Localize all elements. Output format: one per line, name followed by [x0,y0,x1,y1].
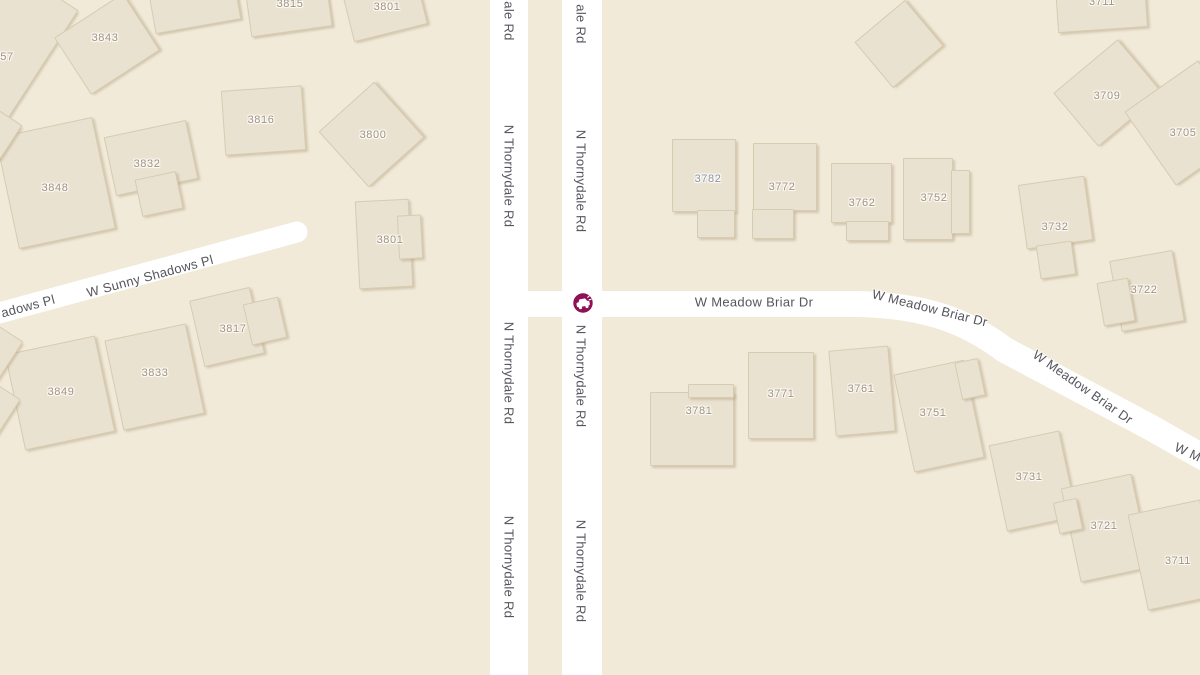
road-label: W Meadow Briar Dr [695,295,814,310]
house-number-label: 57 [0,51,13,63]
house-number-label: 3709 [1094,90,1121,102]
crash-incident-marker[interactable] [571,291,595,315]
road-label: N Thornydale Rd [502,125,517,228]
house-number-label: 3781 [686,405,713,417]
house-number-label: 3843 [92,32,119,44]
road-label: N Thornydale Rd [574,325,589,428]
house-number-label: 3771 [768,388,795,400]
road-label: N Thornydale Rd [502,322,517,425]
house-number-label: 3848 [42,182,69,194]
house-number-label: 3762 [849,197,876,209]
house-number-label: 3732 [1042,221,1069,233]
house-number-label: 3752 [921,192,948,204]
house-number-label: 3801 [377,234,404,246]
map-canvas[interactable]: ale Rdale RdN Thornydale RdN Thornydale … [0,0,1200,675]
house-number-label: 3711 [1165,555,1191,567]
road-label: ale Rd [574,4,589,43]
house-number-label: 3761 [848,383,875,395]
house-number-label: 3711 [1089,0,1115,8]
house-number-label: 3751 [920,407,947,419]
house-number-label: 3721 [1091,520,1118,532]
road-label: N Thornydale Rd [574,130,589,233]
house-number-label: 3705 [1170,127,1197,139]
house-number-label: 3801 [374,1,401,13]
house-number-label: 3772 [769,181,796,193]
house-number-label: 3782 [695,173,722,185]
house-number-label: 3800 [360,129,387,141]
car-crash-icon [571,291,595,315]
house-number-label: 3722 [1131,284,1158,296]
road-label: N Thornydale Rd [502,516,517,619]
road-label: N Thornydale Rd [574,520,589,623]
house-number-label: 3832 [134,158,161,170]
house-number-label: 3731 [1016,471,1043,483]
house-number-label: 3849 [48,386,75,398]
house-number-label: 3817 [220,323,247,335]
roads-layer [0,0,1200,675]
house-number-label: 3833 [142,367,169,379]
house-number-label: 3815 [277,0,304,10]
road-label: ale Rd [502,1,517,40]
house-number-label: 3816 [248,114,275,126]
